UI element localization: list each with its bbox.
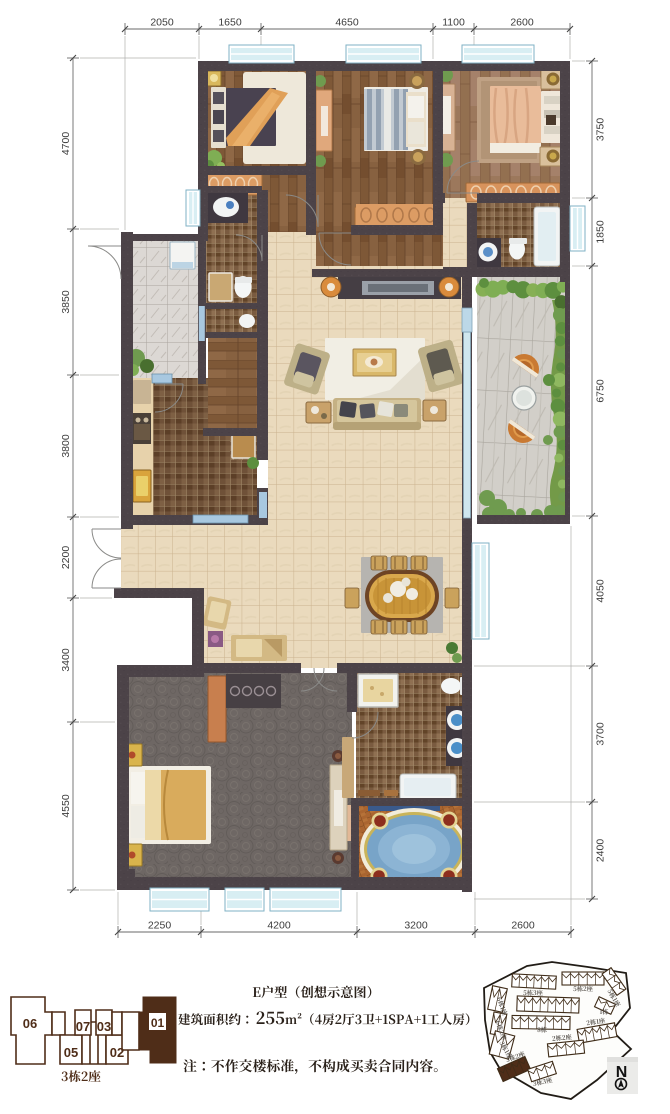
svg-text:4550: 4550 [60, 794, 72, 818]
svg-text:3700: 3700 [595, 722, 607, 746]
svg-text:3800: 3800 [60, 434, 72, 458]
svg-text:4050: 4050 [595, 579, 607, 603]
svg-text:2400: 2400 [595, 839, 607, 863]
svg-text:07: 07 [76, 1019, 90, 1034]
svg-text:06: 06 [23, 1016, 37, 1031]
svg-text:03: 03 [97, 1019, 111, 1034]
svg-text:01: 01 [151, 1016, 165, 1030]
svg-text:2050: 2050 [150, 17, 174, 29]
svg-text:4700: 4700 [60, 132, 72, 156]
svg-text:3850: 3850 [60, 290, 72, 314]
svg-text:4200: 4200 [267, 920, 291, 932]
svg-text:2250: 2250 [148, 920, 172, 932]
svg-text:2600: 2600 [511, 920, 535, 932]
svg-text:02: 02 [110, 1045, 124, 1060]
svg-text:4650: 4650 [335, 17, 359, 29]
svg-text:2600: 2600 [510, 17, 534, 29]
svg-text:05: 05 [64, 1045, 78, 1060]
svg-text:2200: 2200 [60, 546, 72, 570]
svg-text:3200: 3200 [404, 920, 428, 932]
svg-text:6750: 6750 [595, 379, 607, 403]
svg-text:3400: 3400 [60, 648, 72, 672]
svg-text:1650: 1650 [218, 17, 242, 29]
svg-text:1100: 1100 [442, 17, 465, 29]
svg-text:3750: 3750 [595, 118, 607, 142]
svg-text:1850: 1850 [595, 220, 607, 244]
